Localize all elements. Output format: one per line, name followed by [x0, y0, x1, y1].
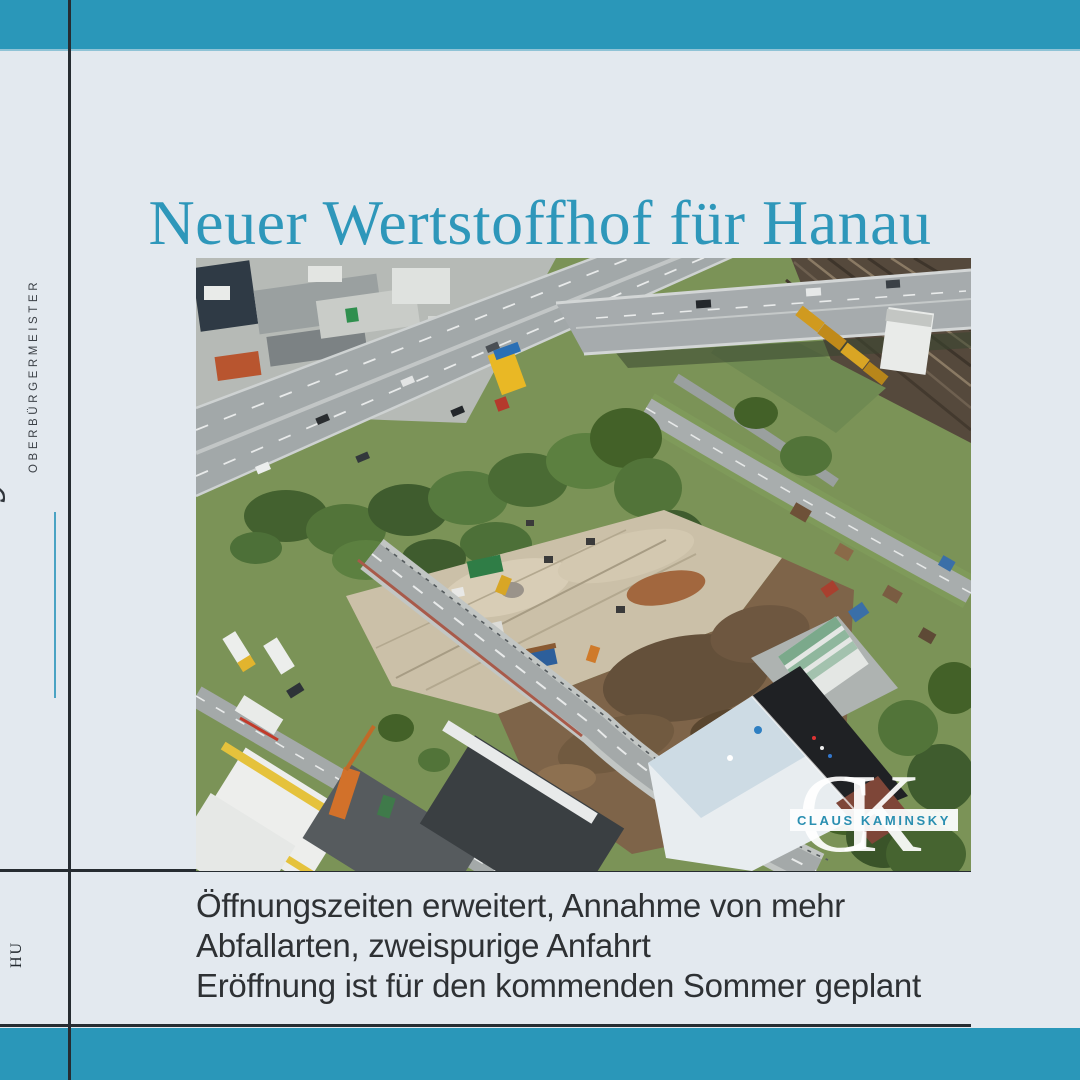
watermark-band: CLAUS KAMINSKY [790, 809, 958, 831]
signature-underline [54, 512, 56, 698]
caption: Öffnungszeiten erweitert, Annahme von me… [196, 886, 921, 1006]
signature: Claus Kaminsky [0, 478, 8, 802]
trackside-building [880, 307, 934, 375]
caption-line-1: Öffnungszeiten erweitert, Annahme von me… [196, 886, 921, 926]
post-canvas: OBERBÜRGERMEISTER Claus Kaminsky HU Neue… [0, 0, 1080, 1080]
hu-mark: HU [7, 941, 27, 968]
page-title: Neuer Wertstoffhof für Hanau [90, 186, 990, 260]
top-accent-band [0, 0, 1080, 51]
caption-line-3: Eröffnung ist für den kommenden Sommer g… [196, 966, 921, 1006]
watermark-name: CLAUS KAMINSKY [797, 813, 951, 828]
bottom-accent-band [0, 1028, 1080, 1080]
caption-line-2: Abfallarten, zweispurige Anfahrt [196, 926, 921, 966]
horizontal-rule-lower [0, 1024, 971, 1027]
aerial-photo: CK CLAUS KAMINSKY [196, 258, 971, 871]
vertical-rule [68, 0, 71, 1080]
role-label: OBERBÜRGERMEISTER [27, 279, 41, 473]
